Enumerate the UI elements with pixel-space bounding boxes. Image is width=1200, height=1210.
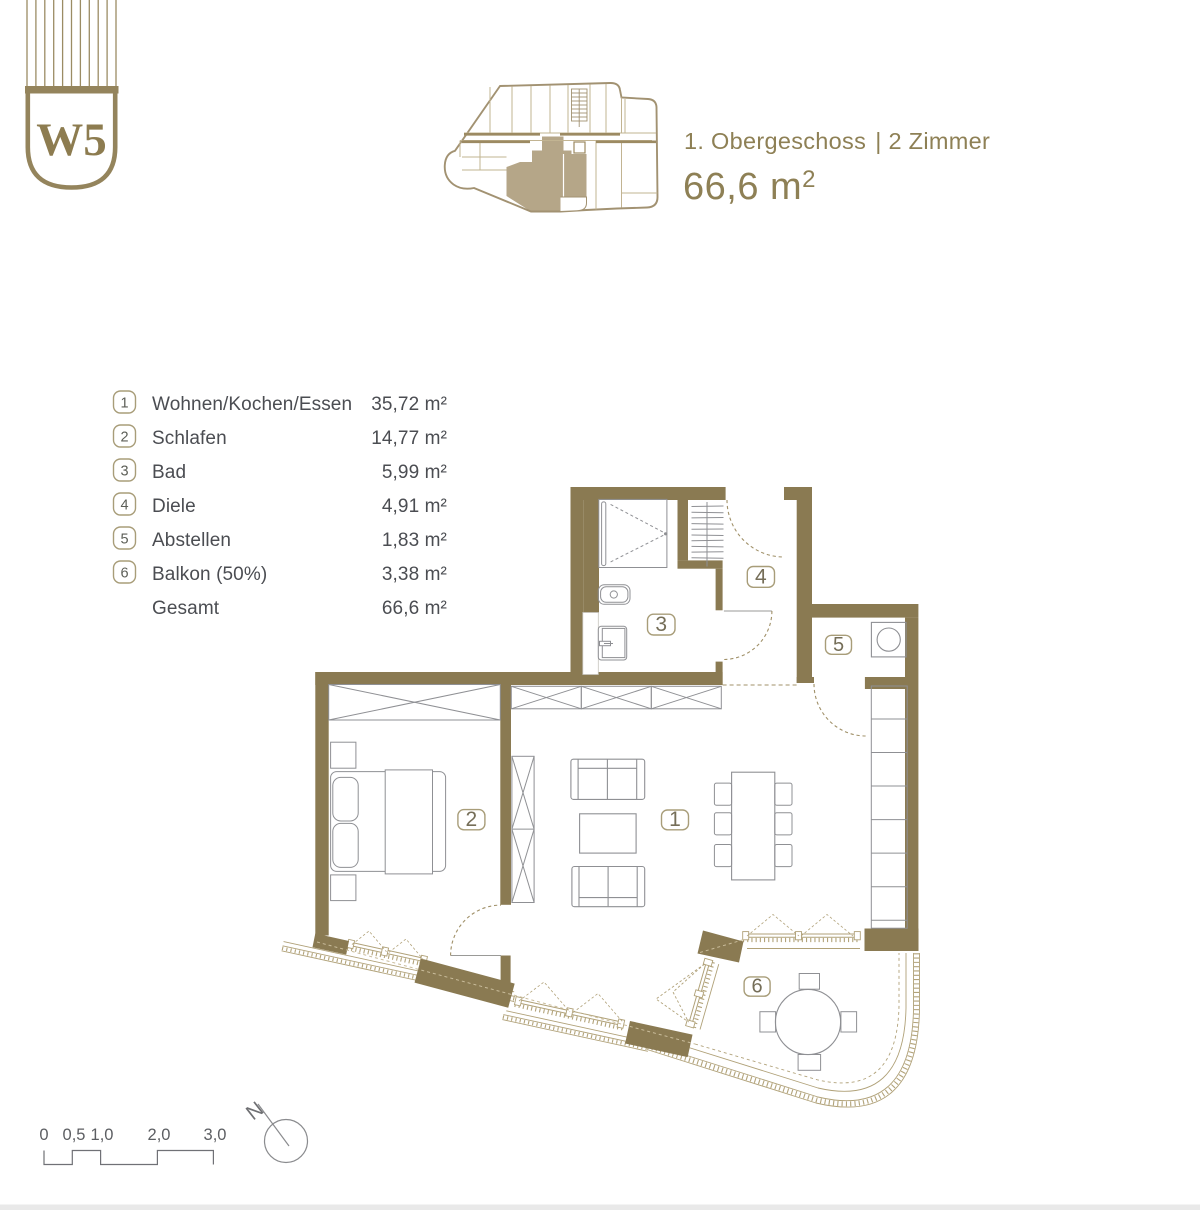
svg-text:6: 6 <box>752 976 763 998</box>
svg-text:14,77 m²: 14,77 m² <box>371 428 447 449</box>
svg-text:5: 5 <box>120 532 128 548</box>
svg-text:4: 4 <box>120 498 128 514</box>
svg-text:2,0: 2,0 <box>148 1126 171 1144</box>
svg-text:66,6 m²: 66,6 m² <box>382 598 447 619</box>
svg-text:3: 3 <box>655 613 667 636</box>
svg-text:35,72 m²: 35,72 m² <box>371 394 447 415</box>
svg-text:1. Obergeschoss | 2 Zimmer: 1. Obergeschoss | 2 Zimmer <box>684 128 990 154</box>
svg-text:Schlafen: Schlafen <box>152 428 227 449</box>
svg-text:4: 4 <box>755 565 767 588</box>
svg-text:1,0: 1,0 <box>91 1126 114 1144</box>
svg-text:5,99 m²: 5,99 m² <box>382 462 447 483</box>
svg-text:1: 1 <box>120 396 128 412</box>
svg-text:3: 3 <box>120 464 128 480</box>
svg-text:3,38 m²: 3,38 m² <box>382 564 447 585</box>
svg-text:N: N <box>242 1097 268 1124</box>
svg-text:0: 0 <box>39 1126 48 1144</box>
svg-text:66,6 m2: 66,6 m2 <box>683 166 816 208</box>
svg-text:0,5: 0,5 <box>63 1126 86 1144</box>
svg-text:W5: W5 <box>36 114 107 166</box>
svg-text:Wohnen/Kochen/Essen: Wohnen/Kochen/Essen <box>152 394 352 415</box>
svg-text:2: 2 <box>466 808 478 831</box>
svg-text:1,83 m²: 1,83 m² <box>382 530 447 551</box>
svg-text:5: 5 <box>833 634 844 656</box>
svg-text:Bad: Bad <box>152 462 186 483</box>
svg-text:4,91 m²: 4,91 m² <box>382 496 447 517</box>
svg-text:Gesamt: Gesamt <box>152 598 220 619</box>
svg-text:6: 6 <box>120 566 128 582</box>
svg-text:2: 2 <box>120 430 128 446</box>
svg-text:3,0: 3,0 <box>204 1126 227 1144</box>
svg-text:Diele: Diele <box>152 496 196 517</box>
svg-text:Balkon (50%): Balkon (50%) <box>152 564 267 585</box>
svg-text:1: 1 <box>669 808 681 831</box>
svg-text:Abstellen: Abstellen <box>152 530 231 551</box>
